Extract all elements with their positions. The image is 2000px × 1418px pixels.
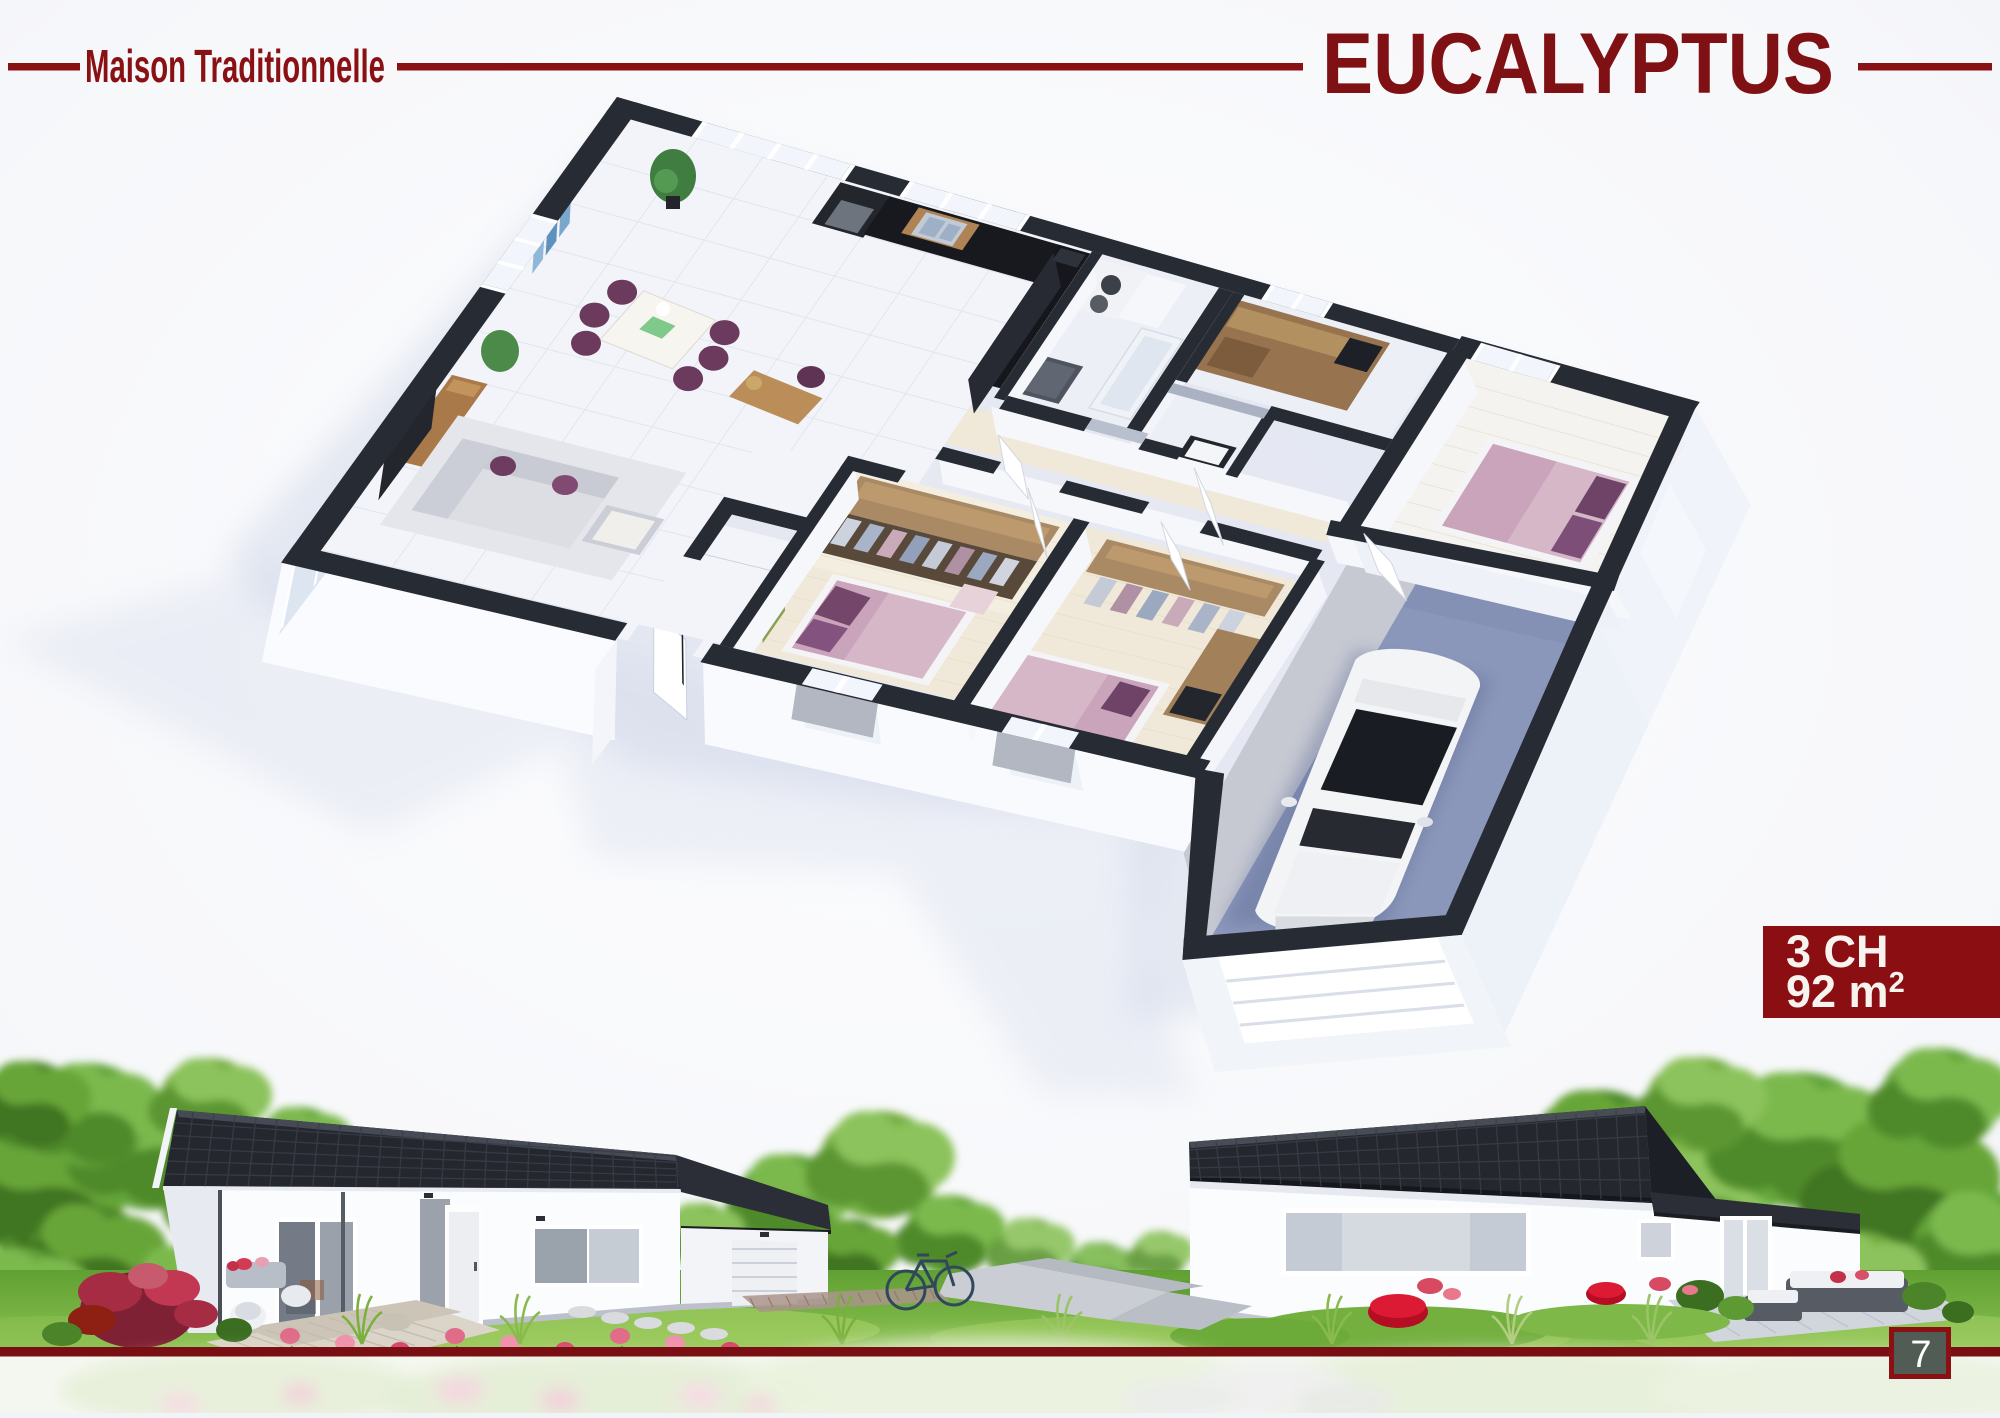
svg-text:Maison Traditionnelle: Maison Traditionnelle [85, 40, 385, 92]
svg-text:92 m2: 92 m2 [1786, 966, 1905, 1017]
svg-text:EUCALYPTUS: EUCALYPTUS [1322, 16, 1834, 112]
svg-text:7: 7 [1910, 1334, 1931, 1376]
